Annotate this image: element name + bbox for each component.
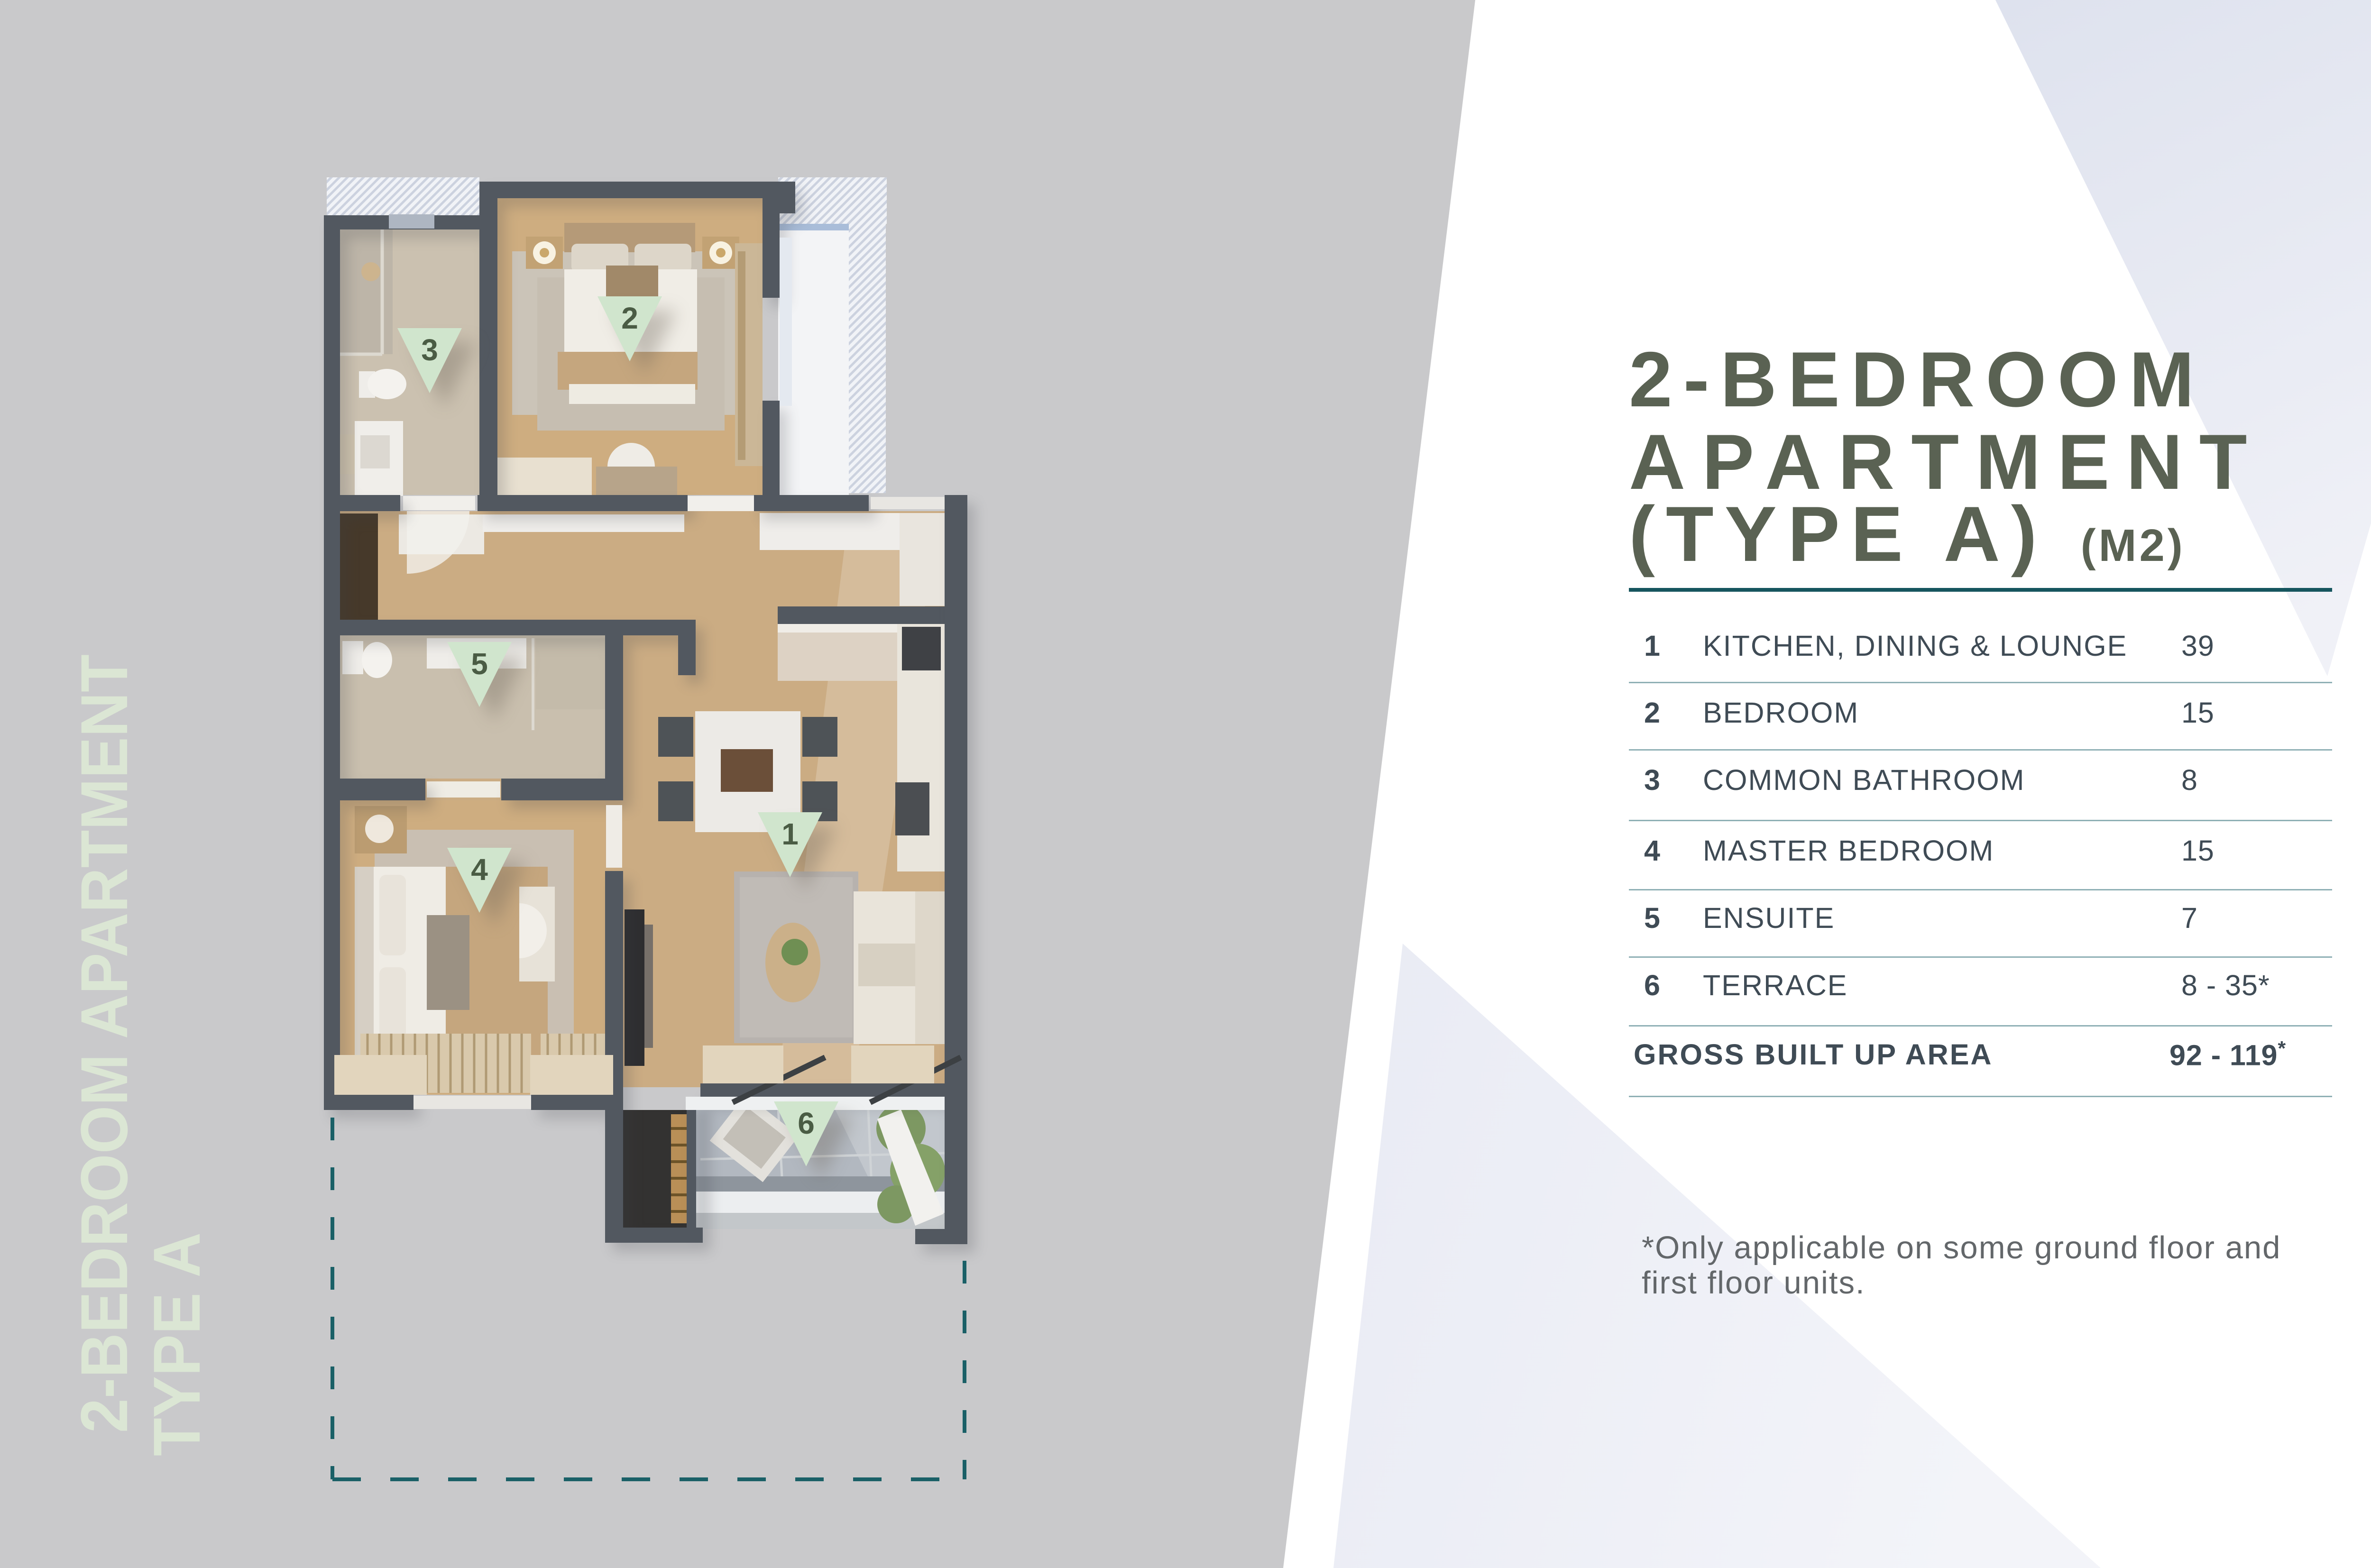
svg-text:1: 1 (781, 817, 799, 851)
svg-text:3: 3 (421, 333, 438, 367)
svg-text:5: 5 (471, 647, 488, 681)
svg-text:TYPE A: TYPE A (139, 1232, 214, 1456)
svg-text:2-BEDROOM APARTMENT: 2-BEDROOM APARTMENT (67, 654, 141, 1433)
svg-text:2: 2 (621, 301, 638, 335)
svg-text:6: 6 (798, 1106, 815, 1140)
svg-text:4: 4 (471, 853, 488, 887)
